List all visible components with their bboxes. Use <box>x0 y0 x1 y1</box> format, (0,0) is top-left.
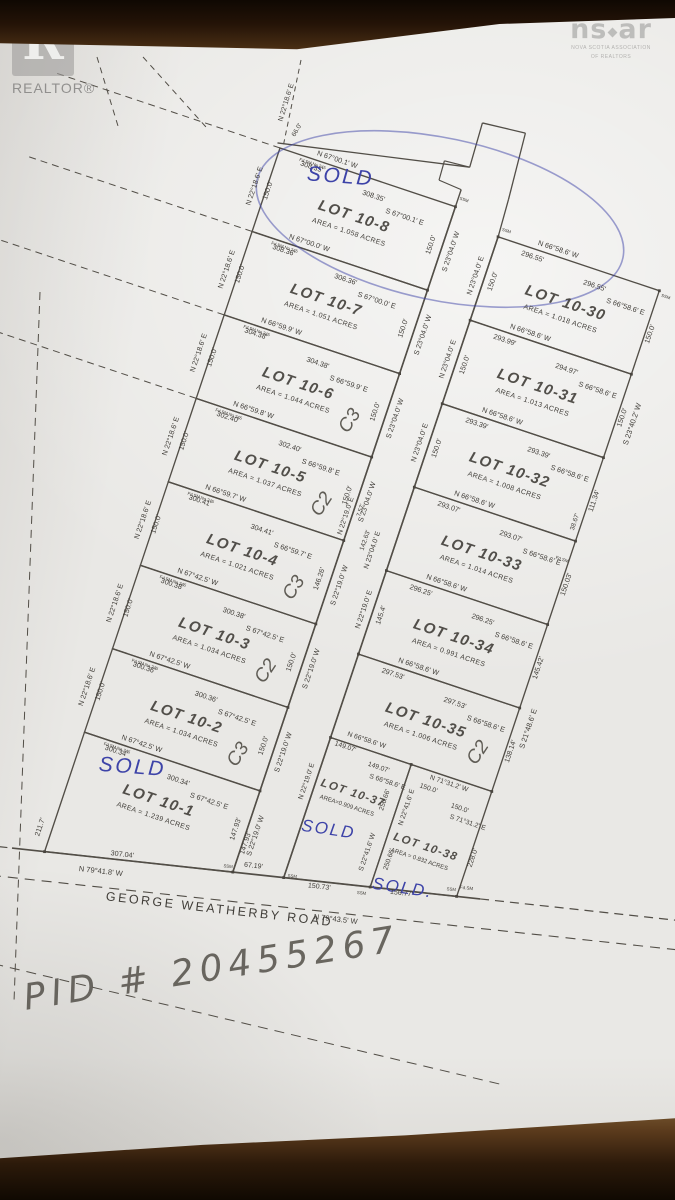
survey-marker <box>369 886 372 889</box>
survey-marker <box>602 456 605 459</box>
survey-marker <box>518 707 521 710</box>
plan-label: 150.0' <box>256 734 271 756</box>
survey-marker <box>329 736 332 739</box>
sold-note: SOLD <box>306 162 375 190</box>
plan-label: 296.25' <box>470 611 496 627</box>
survey-marker <box>342 539 345 542</box>
plan-label: 150.0' <box>367 400 382 422</box>
plan-label: S 66°58.6' E <box>494 630 535 651</box>
road-flag <box>509 133 526 199</box>
plan-label: S 66°58.6' E <box>466 713 507 734</box>
sold-note: SOLD <box>300 816 357 843</box>
survey-marker <box>287 706 290 709</box>
survey-marker <box>574 540 577 543</box>
road-near-edge-ext <box>0 845 12 848</box>
plan-label: 156.77' <box>390 889 413 899</box>
survey-marker <box>630 373 633 376</box>
plan-label: N 22°18.6' E <box>160 415 181 456</box>
survey-marker <box>497 235 500 238</box>
plan-label: 150.0' <box>395 317 410 339</box>
plan-label: N 22°18.6' E <box>132 499 153 540</box>
adjacent-lot-dashed-line <box>0 324 196 399</box>
plan-label: 150.0' <box>120 596 135 618</box>
survey-marker <box>410 763 413 766</box>
survey-marker <box>314 623 317 626</box>
plan-label: N 22°18.6' E <box>244 165 265 206</box>
survey-marker <box>413 486 416 489</box>
plan-label: 297.53' <box>381 666 407 682</box>
plan-label: S 21°48.6' E <box>517 708 539 750</box>
plan-label: 146.26' <box>311 566 327 592</box>
survey-marker <box>658 289 661 292</box>
road-near-edge-ext <box>480 899 675 925</box>
plan-label: 296.25' <box>409 582 435 598</box>
top-left-dashed-line <box>143 57 206 127</box>
survey-marker <box>454 205 457 208</box>
plan-label: S 66°58.6' E <box>577 379 618 400</box>
survey-marker <box>259 789 262 792</box>
realtor-label: REALTOR® <box>12 80 95 96</box>
survey-plan-photo: N 67°00.1' W308.35'308.35'S 67°00.1' ELO… <box>0 0 675 1200</box>
plan-label: 150.03' <box>558 571 574 597</box>
plan-label: S 66°58.6' E <box>368 772 407 792</box>
plan-label: 302.40' <box>277 438 303 454</box>
plan-label: 150.73' <box>307 882 330 892</box>
plan-label: N 23°04.0' E <box>437 338 458 379</box>
plan-label: N 22°18.6' E <box>277 82 296 122</box>
plan-label: 300.34' <box>166 772 192 788</box>
plan-label: N 22°19.0' E <box>353 589 374 630</box>
plan-label: 150.0' <box>423 234 438 256</box>
plan-label: SSM <box>501 227 512 235</box>
plan-label: S 23°04.0' W <box>384 397 406 440</box>
plan-label: S 23°04.0' W <box>412 313 434 356</box>
plan-label: SSM <box>223 863 233 869</box>
survey-marker <box>370 456 373 459</box>
plan-label: 228.0' <box>465 846 480 868</box>
plan-label: 293.39' <box>464 415 490 431</box>
plan-label: 111.34' <box>586 488 602 513</box>
plan-label: 150.0' <box>284 651 299 673</box>
plan-label: 150.0' <box>176 429 191 451</box>
sold-note: SOLD. <box>371 874 434 902</box>
plan-label: S 22°41.6' W <box>357 831 377 872</box>
plan-label: 296.55' <box>582 277 608 293</box>
plan-label: 306.36' <box>333 271 359 287</box>
plan-label: 293.39' <box>526 444 552 460</box>
plan-label: 145.4' <box>373 604 388 626</box>
survey-marker <box>398 372 401 375</box>
plan-label: 304.41' <box>250 522 276 538</box>
nsar-subtitle-2: OF REALTORS <box>552 54 670 61</box>
survey-marker <box>385 569 388 572</box>
pencil-note: C2 <box>250 655 281 687</box>
nsar-diamond-icon <box>608 28 618 38</box>
plan-label: S 66°58.6' E <box>605 296 646 317</box>
road-stub <box>439 180 461 190</box>
plan-label: 67.19' <box>244 862 264 871</box>
plan-label: 66.0' <box>291 122 304 138</box>
plan-label: 293.07' <box>498 528 524 544</box>
pencil-note: C2 <box>463 736 494 768</box>
road-flag <box>482 123 525 133</box>
pencil-note: C3 <box>223 738 254 770</box>
plan-label: S 23°04.0' W <box>440 230 462 273</box>
plan-label: 304.38' <box>305 355 331 371</box>
plan-label: 300.38' <box>222 605 248 621</box>
plan-label: N 22°18.6' E <box>188 332 209 373</box>
plan-label: N 23°04.0' E <box>409 422 430 463</box>
plan-label: 150.0' <box>642 323 657 345</box>
plan-label: 150.0' <box>429 437 444 459</box>
plan-label: 150.0' <box>93 680 108 702</box>
survey-marker <box>469 319 472 322</box>
plan-label: 307.04' <box>110 848 135 860</box>
plan-label: S 22°19.0' W <box>300 647 322 690</box>
adjacent-lot-dashed-line <box>1 240 224 315</box>
plan-label: 150.0' <box>450 802 470 814</box>
survey-plan-drawing: N 67°00.1' W308.35'308.35'S 67°00.1' ELO… <box>0 0 675 1200</box>
plan-label: 296.55' <box>520 248 546 264</box>
plan-label: 211.7' <box>32 816 47 837</box>
nsar-watermark: nsar NOVA SCOTIA ASSOCIATION OF REALTORS <box>552 16 670 61</box>
plan-label: N 22°18.6' E <box>216 248 237 289</box>
plan-label: N 22°18.6' E <box>104 582 125 623</box>
plan-label: 150.0' <box>485 270 500 292</box>
plan-label: 147.93' <box>227 816 243 842</box>
lot-10-37 <box>284 738 412 888</box>
plan-label: 294.97' <box>554 361 580 377</box>
plan-label: N 22°19.0' E <box>297 761 317 800</box>
plan-label: N 23°04.0' E <box>464 255 485 296</box>
sold-note: SOLD <box>98 753 167 781</box>
plan-label: 150.0' <box>260 179 275 201</box>
top-left-dashed-line <box>97 57 118 126</box>
plan-label: SSM <box>446 886 456 892</box>
plan-label: 150.0' <box>419 782 439 794</box>
plan-label: SSM <box>661 293 672 301</box>
survey-marker <box>490 790 493 793</box>
plan-label: 297.53' <box>443 695 469 711</box>
survey-marker <box>357 653 360 656</box>
nsar-subtitle-1: NOVA SCOTIA ASSOCIATION <box>552 45 670 52</box>
plan-label: N 22°41.6' E <box>397 787 417 826</box>
plan-label: S 22°19.0' W <box>272 731 294 774</box>
plan-label: 138.14' <box>502 738 518 764</box>
plan-label: 308.35' <box>361 188 387 204</box>
survey-marker <box>455 895 458 898</box>
plan-label: 150.0' <box>148 513 163 535</box>
survey-marker <box>441 402 444 405</box>
adjacent-lot-dashed-line <box>29 157 252 232</box>
survey-marker <box>231 871 234 874</box>
plan-label: S 66°58.6' E <box>549 463 590 484</box>
plan-label: 300.36' <box>194 688 220 704</box>
plan-label: S 22°19.0' W <box>328 564 350 607</box>
plan-label: 150.0' <box>232 262 247 284</box>
plan-label: Fd.SM <box>460 885 474 891</box>
plan-label: N 22°18.6' E <box>76 666 97 707</box>
pencil-note: C3 <box>334 404 365 436</box>
survey-marker <box>546 623 549 626</box>
plan-label: 150.0' <box>204 346 219 368</box>
pencil-note: C2 <box>306 488 337 520</box>
plan-label: N 79°41.8' W <box>78 864 124 878</box>
plan-label: SSM <box>459 196 470 204</box>
plan-label: 150.0' <box>457 353 472 375</box>
plan-label: 145.42' <box>530 655 546 681</box>
survey-marker <box>43 850 46 853</box>
survey-marker <box>426 289 429 292</box>
pencil-note: C3 <box>278 571 309 603</box>
left-margin-dashed-line <box>14 292 40 1002</box>
plan-label: SSM <box>357 890 367 896</box>
plan-label: 250.66' <box>383 848 397 871</box>
survey-marker <box>282 876 285 879</box>
